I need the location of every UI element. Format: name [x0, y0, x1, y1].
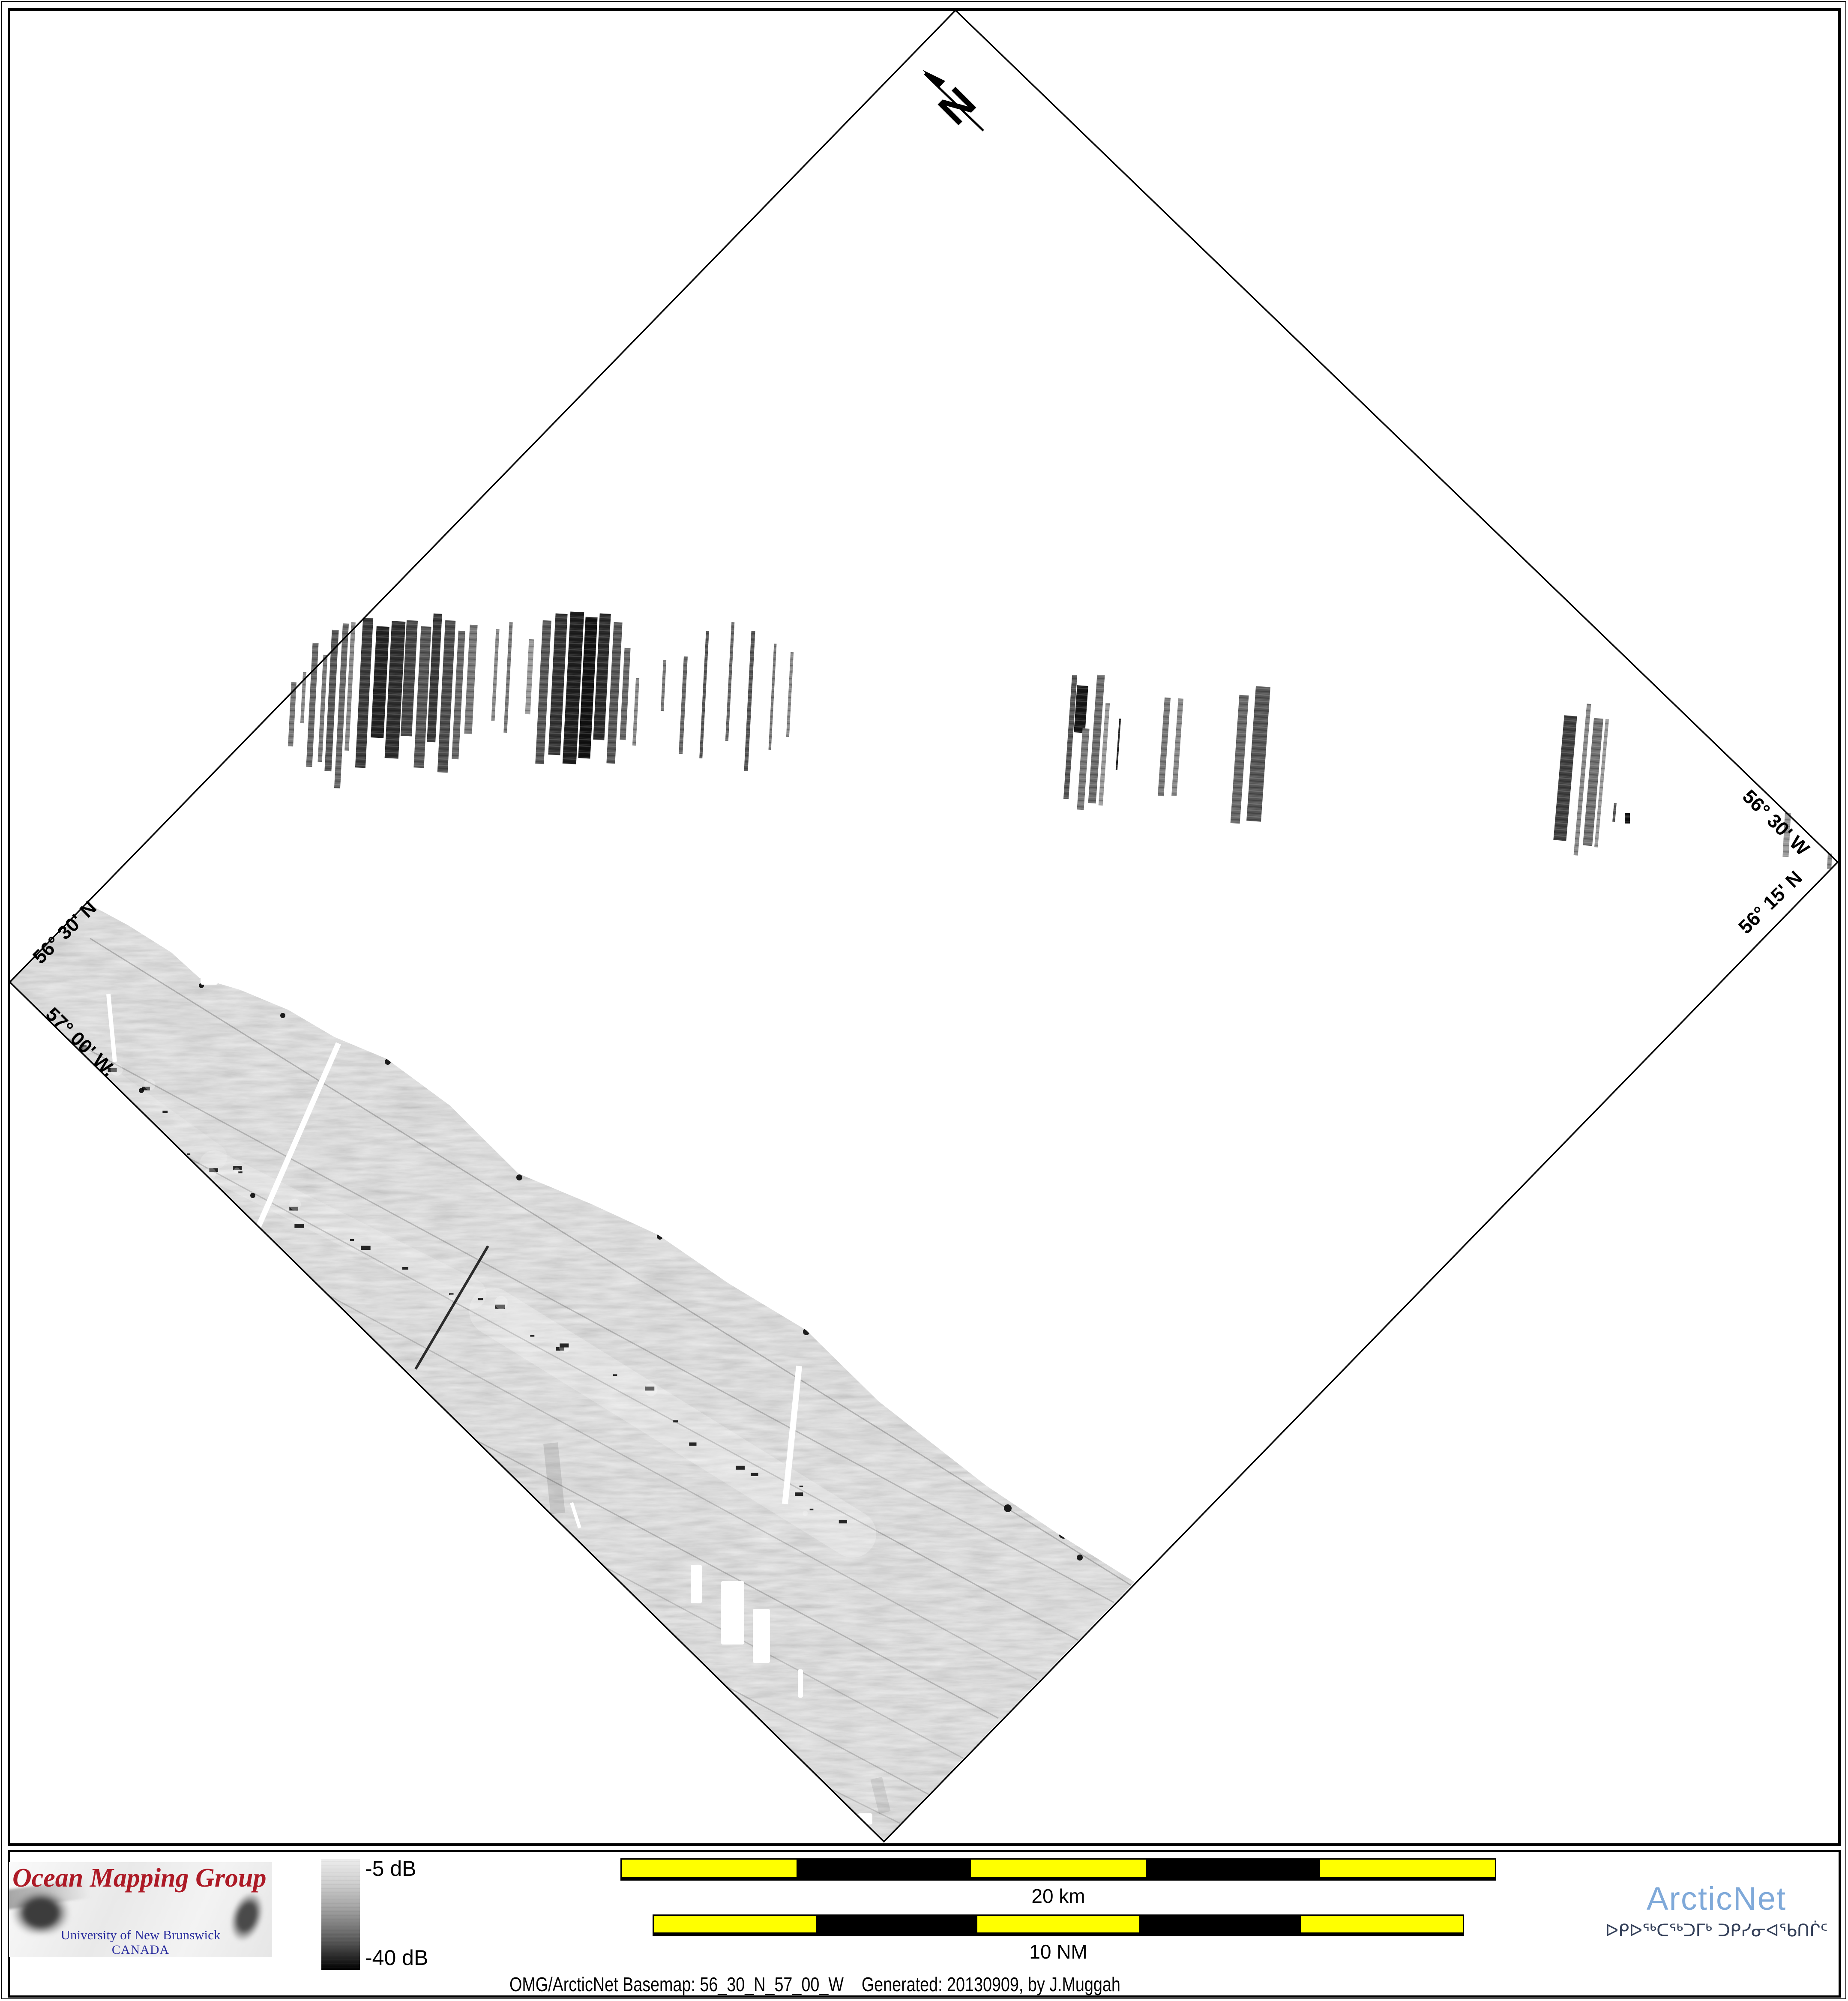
sonar-track-strips: [288, 611, 1832, 869]
sonar-strip: [1063, 675, 1077, 799]
arcticnet-logo: ArcticNet ᐅᑭᐅᖅᑕᖅᑐᒥᒃ ᑐᑭᓯᓂᐊᖃᑎᒌᑦ: [1588, 1880, 1845, 1941]
sonar-strip: [632, 678, 639, 746]
sonar-strip: [1116, 719, 1121, 770]
sonar-strip: [769, 644, 777, 750]
sonar-strip: [1077, 728, 1089, 810]
scalebar-segment: [1301, 1916, 1463, 1932]
sonar-strip: [355, 618, 373, 768]
scalebar-segment: [622, 1860, 797, 1877]
basemap-canvas: N 56° 30' N 57° 00' W. 56° 30' W 56° 15'…: [0, 0, 1848, 2001]
colorbar-max-label: -5 dB: [365, 1856, 416, 1881]
arcticnet-name: ArcticNet: [1588, 1880, 1845, 1917]
sonar-strip: [1158, 698, 1171, 796]
edge-label-bottom-right: 56° 15' N: [1734, 866, 1806, 938]
scalebar-segment: [1146, 1860, 1321, 1877]
scalebar-km-label: 20 km: [620, 1884, 1496, 1908]
sonar-strip: [503, 622, 512, 733]
sonar-strip: [786, 652, 794, 737]
scalebar-nm-label: 10 NM: [653, 1940, 1464, 1963]
sonar-strip: [306, 643, 318, 767]
backscatter-colorbar-texture: [321, 1859, 360, 1970]
scalebar-km: [620, 1858, 1496, 1881]
scalebar-segment: [1139, 1916, 1301, 1932]
sonar-strip: [1171, 698, 1183, 796]
sonar-strip: [525, 639, 534, 714]
sonar-strip: [725, 622, 735, 741]
sonar-strip: [491, 629, 499, 721]
sonar-strip: [1553, 715, 1577, 841]
omg-logo-title: Ocean Mapping Group: [12, 1863, 269, 1893]
sonar-strip: [1231, 695, 1249, 824]
omg-logo-university: University of New Brunswick: [9, 1927, 272, 1943]
scalebar-segment: [816, 1916, 978, 1932]
omg-logo-country: CANADA: [9, 1943, 272, 1957]
sonar-strip: [464, 625, 477, 734]
north-arrowhead: [923, 70, 945, 88]
sonar-strip: [620, 648, 630, 740]
scalebar-segment: [1320, 1860, 1495, 1877]
colorbar-min-label: -40 dB: [365, 1945, 428, 1970]
basemap-sheet: { "map": { "north_label": "N", "corner_l…: [0, 0, 1848, 2001]
sonar-strip: [744, 631, 755, 771]
edge-label-top-right: 56° 30' W: [1738, 785, 1814, 860]
north-arrow: N: [923, 70, 985, 134]
sonar-strip: [699, 631, 709, 758]
sonar-strip: [661, 660, 666, 711]
sonar-strip: [679, 656, 688, 754]
sonar-swath: [0, 896, 1165, 1851]
scalebar-segment: [977, 1916, 1139, 1932]
sonar-strip: [1625, 813, 1630, 824]
arcticnet-inuktitut: ᐅᑭᐅᖅᑕᖅᑐᒥᒃ ᑐᑭᓯᓂᐊᖃᑎᒌᑦ: [1588, 1921, 1845, 1941]
sheet-caption: OMG/ArcticNet Basemap: 56_30_N_57_00_W G…: [509, 1973, 1120, 1996]
scalebar-nm: [653, 1914, 1464, 1936]
scalebar-segment: [971, 1860, 1146, 1877]
scalebar-segment: [797, 1860, 971, 1877]
scalebar-segment: [654, 1916, 816, 1932]
sonar-strip: [1246, 686, 1270, 822]
sonar-strip: [1612, 803, 1617, 822]
omg-logo: Ocean Mapping Group University of New Br…: [9, 1862, 272, 1957]
